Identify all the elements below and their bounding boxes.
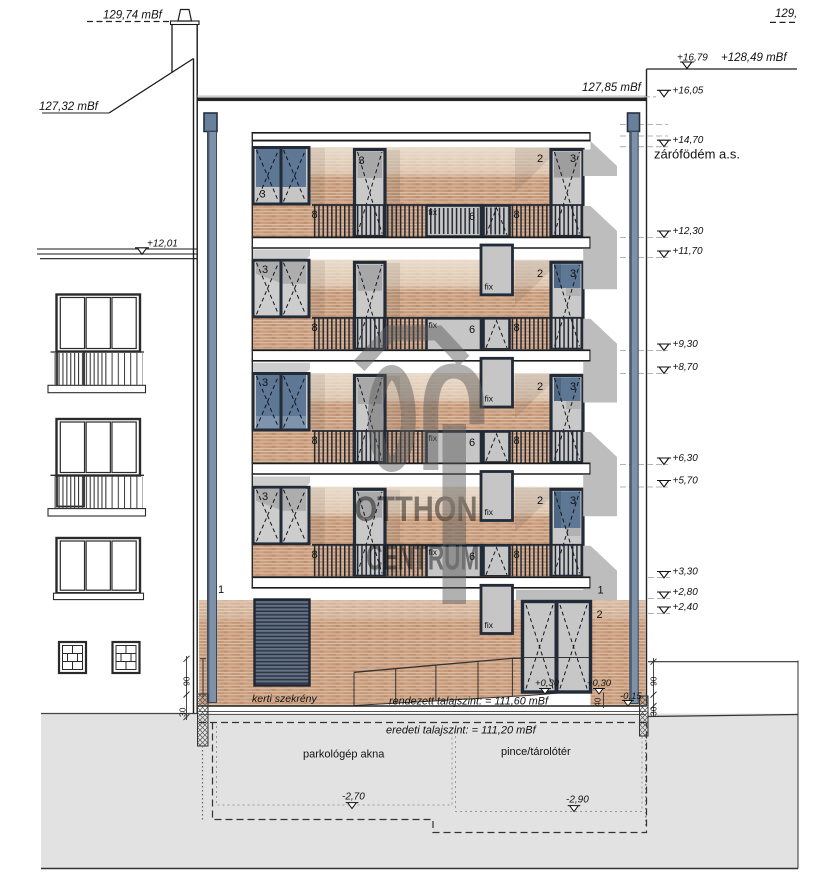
svg-text:kerti szekrény: kerti szekrény xyxy=(252,693,318,705)
svg-text:129,: 129, xyxy=(775,8,797,20)
svg-text:zárófödém a.s.: zárófödém a.s. xyxy=(654,147,740,162)
svg-text:fix: fix xyxy=(485,281,494,291)
svg-text:OTTHON: OTTHON xyxy=(355,490,478,529)
svg-text:127,32 mBf: 127,32 mBf xyxy=(39,101,100,113)
svg-text:6: 6 xyxy=(469,437,475,449)
svg-text:8: 8 xyxy=(312,435,318,447)
svg-text:3: 3 xyxy=(262,491,268,503)
svg-text:8: 8 xyxy=(514,322,520,334)
svg-text:+5,70: +5,70 xyxy=(673,476,699,487)
svg-text:6: 6 xyxy=(469,324,475,336)
svg-text:8: 8 xyxy=(514,209,520,221)
svg-text:3: 3 xyxy=(570,268,576,280)
svg-text:+128,49 mBf: +128,49 mBf xyxy=(721,52,788,64)
svg-text:rendezett talajszint: = 111,60: rendezett talajszint: = 111,60 mBf xyxy=(389,696,549,708)
svg-text:fix: fix xyxy=(485,620,494,630)
svg-text:8: 8 xyxy=(312,209,318,221)
svg-text:+12,01: +12,01 xyxy=(147,239,178,250)
svg-text:3: 3 xyxy=(262,377,268,389)
svg-text:6: 6 xyxy=(469,211,475,223)
svg-text:8: 8 xyxy=(312,322,318,334)
svg-text:+16,05: +16,05 xyxy=(673,85,704,96)
svg-text:+2,40: +2,40 xyxy=(673,602,699,613)
svg-text:+6,30: +6,30 xyxy=(673,453,699,464)
svg-text:+8,70: +8,70 xyxy=(673,362,699,373)
svg-text:+2,80: +2,80 xyxy=(673,587,699,598)
svg-text:129,74 mBf: 129,74 mBf xyxy=(103,10,164,22)
svg-text:pince/tárolótér: pince/tárolótér xyxy=(501,746,571,758)
svg-text:3: 3 xyxy=(570,495,576,507)
svg-text:30: 30 xyxy=(649,706,659,716)
svg-text:8: 8 xyxy=(514,549,520,561)
svg-text:parkológép akna: parkológép akna xyxy=(303,749,385,761)
svg-text:2: 2 xyxy=(537,153,543,165)
svg-text:+0,30: +0,30 xyxy=(535,678,560,689)
svg-text:-2,70: -2,70 xyxy=(342,792,365,803)
svg-text:1: 1 xyxy=(218,584,224,596)
svg-text:2: 2 xyxy=(537,268,543,280)
svg-text:+9,30: +9,30 xyxy=(673,339,699,350)
svg-text:CENTRUM: CENTRUM xyxy=(366,539,479,578)
svg-text:3: 3 xyxy=(570,153,576,165)
svg-text:2: 2 xyxy=(537,381,543,393)
svg-text:+0,30: +0,30 xyxy=(587,678,612,689)
svg-text:2: 2 xyxy=(537,495,543,507)
svg-text:fix: fix xyxy=(429,207,438,217)
svg-text:3: 3 xyxy=(262,264,268,276)
svg-text:+12,30: +12,30 xyxy=(673,226,704,237)
svg-text:-2,90: -2,90 xyxy=(566,795,589,806)
svg-text:127,85 mBf: 127,85 mBf xyxy=(582,82,643,94)
svg-text:fix: fix xyxy=(485,507,494,517)
svg-text:1: 1 xyxy=(598,585,604,597)
svg-text:30: 30 xyxy=(178,707,188,717)
svg-text:+11,70: +11,70 xyxy=(673,246,704,257)
svg-text:+14,70: +14,70 xyxy=(673,135,704,146)
svg-text:8: 8 xyxy=(312,549,318,561)
svg-text:90: 90 xyxy=(649,676,659,686)
svg-text:2: 2 xyxy=(597,609,603,621)
svg-text:8: 8 xyxy=(514,435,520,447)
svg-text:3: 3 xyxy=(570,381,576,393)
svg-text:90: 90 xyxy=(182,676,192,686)
svg-text:40: 40 xyxy=(593,697,603,707)
svg-text:eredeti talajszint: = 111,20 m: eredeti talajszint: = 111,20 mBf xyxy=(386,725,537,737)
svg-text:+3,30: +3,30 xyxy=(673,567,699,578)
svg-text:fix: fix xyxy=(485,394,494,404)
svg-text:3: 3 xyxy=(359,155,365,167)
svg-text:3: 3 xyxy=(260,189,266,201)
